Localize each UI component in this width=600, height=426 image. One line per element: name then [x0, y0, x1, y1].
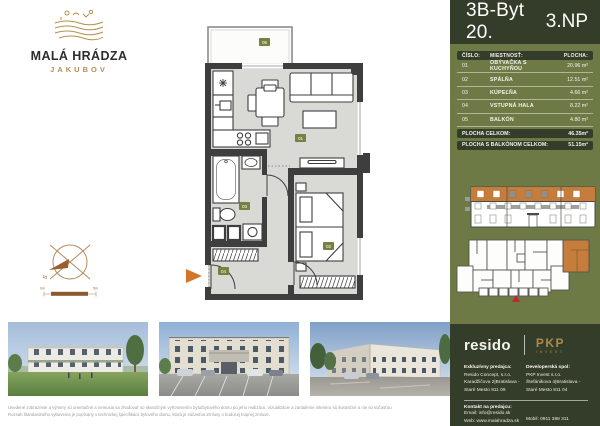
site-elevation-diagram [465, 185, 596, 229]
photo-garden-view [8, 322, 148, 396]
address-columns: Exkluzívny predajca: Resido Concept, s.r… [464, 364, 588, 395]
brand-title: MALÁ HRÁDZA [22, 49, 136, 63]
bathroom-sink [242, 156, 260, 169]
scale-start: 0m [40, 287, 45, 291]
north-label: S [42, 274, 49, 280]
room-label-04: 04 [221, 269, 227, 274]
compass-rose: S 0m 5m [40, 238, 104, 300]
balcony-outline [208, 27, 292, 67]
north-needle [49, 259, 69, 270]
seller-address-2: Staré Mesto 811 09 [464, 387, 526, 395]
room-area: 20.96 m² [548, 63, 588, 69]
flyer-page: MALÁ HRÁDZA JAKUBOV [0, 0, 600, 426]
table-row: 04 VSTUPNÁ HALA 8.22 m² [457, 100, 593, 113]
room-number: 05 [462, 117, 490, 123]
col-area: PLOCHA: [548, 53, 588, 59]
room-name: BALKÓN [490, 117, 548, 123]
table-row: 02 SPÁLŇA 12.51 m² [457, 73, 593, 86]
developer-address-2: Staré Mesto 811 04 [526, 387, 588, 395]
developer-name: PKP Invest s.r.o. [526, 372, 588, 380]
col-number: ČÍSLO: [462, 53, 490, 59]
room-name: VSTUPNÁ HALA [490, 103, 548, 109]
table-row: 03 KÚPEĽŇA 4.66 m² [457, 87, 593, 100]
photo-front-view [159, 322, 299, 396]
seller-label: Exkluzívny predajca: [464, 364, 526, 372]
brand-subtitle: JAKUBOV [22, 65, 136, 74]
entrance-arrow-icon [186, 269, 202, 283]
seller-block: Exkluzívny predajca: Resido Concept, s.r… [464, 364, 526, 395]
total-balcony-value: 51.15m² [568, 142, 588, 148]
total-balcony-bar: PLOCHA S BALKÓNOM CELKOM: 51.15m² [457, 141, 593, 150]
developer-block: Developerská spol: PKP Invest s.r.o. Šte… [526, 364, 588, 395]
room-number: 02 [462, 77, 490, 83]
total-area-label: PLOCHA CELKOM: [462, 131, 510, 137]
disclaimer-line-1: Uvedené zobrazenie a výmery sú orientačn… [8, 405, 440, 412]
contact-divider [464, 400, 588, 401]
pkp-logo-text: PKP [536, 336, 565, 350]
bathtub [213, 156, 239, 203]
developer-address-1: Štefánikova 4|Bratislava - [526, 379, 588, 387]
room-label-05: 05 [262, 40, 268, 45]
partner-logos: resido PKP INVEST [464, 332, 588, 358]
room-name: SPÁLŇA [490, 77, 548, 83]
sofa [290, 73, 353, 102]
contact-email[interactable]: Email: info@resido.sk [464, 410, 526, 418]
floor-title: 3.NP [546, 11, 588, 33]
floor-schematic-diagram [455, 236, 597, 304]
scale-end: 5m [93, 287, 98, 291]
fridge-snowflake-icon [219, 79, 227, 87]
unit-header: 3B-Byt 20. 3.NP [450, 0, 600, 44]
brand-logo: MALÁ HRÁDZA JAKUBOV [22, 8, 136, 74]
info-panel: ČÍSLO: MIESTNOSŤ: PLOCHA: 01 OBÝVAČKA S … [450, 44, 600, 324]
room-number: 04 [462, 103, 490, 109]
rooms-table-header: ČÍSLO: MIESTNOSŤ: PLOCHA: [457, 51, 593, 60]
room-label-02: 02 [326, 244, 332, 249]
col-room: MIESTNOSŤ: [490, 53, 548, 59]
room-label-03: 03 [242, 204, 248, 209]
contact-panel: resido PKP INVEST Exkluzívny predajca: R… [450, 324, 600, 426]
contact-web[interactable]: Web: www.malahradza.sk [464, 418, 526, 426]
developer-label: Developerská spol: [526, 364, 588, 372]
room-label-01: 01 [298, 136, 304, 141]
bedroom-wardrobe [300, 276, 355, 288]
room-area: 12.51 m² [548, 77, 588, 83]
coffee-table [303, 111, 336, 128]
logo-mark-icon [53, 8, 105, 42]
room-number: 01 [462, 63, 490, 69]
hall-wardrobe [213, 249, 258, 261]
seller-address-1: Karadžičova 2|Bratislava - [464, 379, 526, 387]
washing-machine [243, 224, 262, 240]
disclaimer-line-2: Rozsah štandardného vybavenia je popísan… [8, 412, 440, 419]
bathroom-cabinet [228, 226, 240, 240]
total-area-bar: PLOCHA CELKOM: 46.35m² [457, 129, 593, 138]
kitchen-sink [256, 133, 268, 144]
photo-side-view [310, 322, 450, 396]
room-name: OBÝVAČKA S KUCHYŇOU [490, 60, 548, 72]
room-area: 4.80 m² [548, 117, 588, 123]
pkp-logo-sub: INVEST [536, 350, 565, 354]
logo-divider [524, 335, 525, 355]
scale-bar: 0m 5m [40, 287, 98, 297]
floorplan-svg: 01 02 03 04 05 [180, 25, 380, 315]
rooms-table: ČÍSLO: MIESTNOSŤ: PLOCHA: 01 OBÝVAČKA S … [457, 51, 593, 150]
contact-details: Email: info@resido.sk Web: www.malahradz… [464, 410, 588, 426]
tv-stand [300, 158, 344, 168]
highlighted-unit [563, 240, 589, 272]
contact-mobile[interactable]: Mobil: 0911 388 311 [526, 417, 588, 422]
toilet [213, 208, 235, 221]
room-area: 4.66 m² [548, 90, 588, 96]
seller-name: Resido Concept, s.r.o. [464, 372, 526, 380]
bathroom-cabinet [213, 226, 225, 240]
table-row: 01 OBÝVAČKA S KUCHYŇOU 20.96 m² [457, 60, 593, 73]
unit-title: 3B-Byt 20. [466, 0, 546, 44]
resido-logo: resido [464, 337, 511, 354]
total-balcony-label: PLOCHA S BALKÓNOM CELKOM: [462, 142, 548, 148]
total-area-value: 46.35m² [568, 131, 588, 137]
table-row: 05 BALKÓN 4.80 m² [457, 114, 593, 127]
room-number: 03 [462, 90, 490, 96]
room-area: 8.22 m² [548, 103, 588, 109]
bed [296, 183, 343, 271]
pkp-logo: PKP INVEST [536, 336, 565, 355]
room-name: KÚPEĽŇA [490, 90, 548, 96]
